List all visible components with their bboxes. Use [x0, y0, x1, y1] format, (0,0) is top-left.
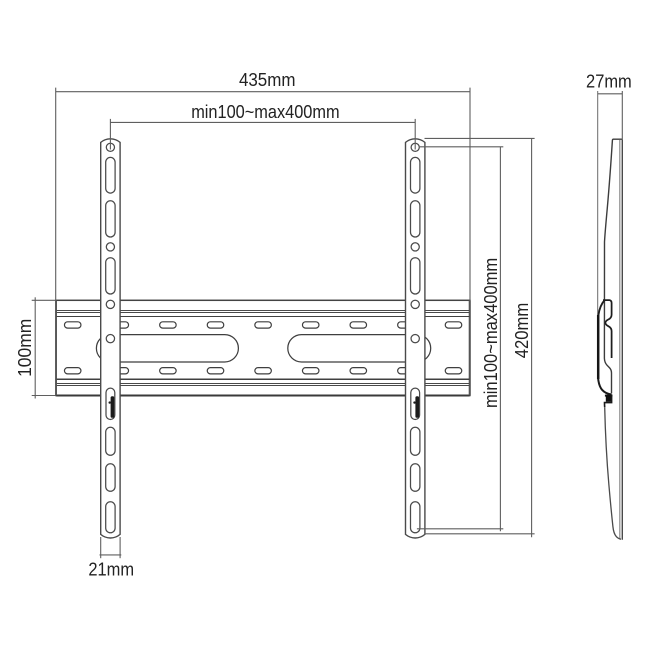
svg-text:27mm: 27mm: [586, 70, 632, 91]
svg-text:100mm: 100mm: [14, 319, 35, 377]
svg-text:21mm: 21mm: [88, 559, 134, 580]
svg-text:min100~max400mm: min100~max400mm: [480, 258, 501, 408]
svg-text:435mm: 435mm: [239, 69, 296, 90]
svg-text:min100~max400mm: min100~max400mm: [191, 101, 339, 122]
svg-text:420mm: 420mm: [511, 303, 532, 359]
